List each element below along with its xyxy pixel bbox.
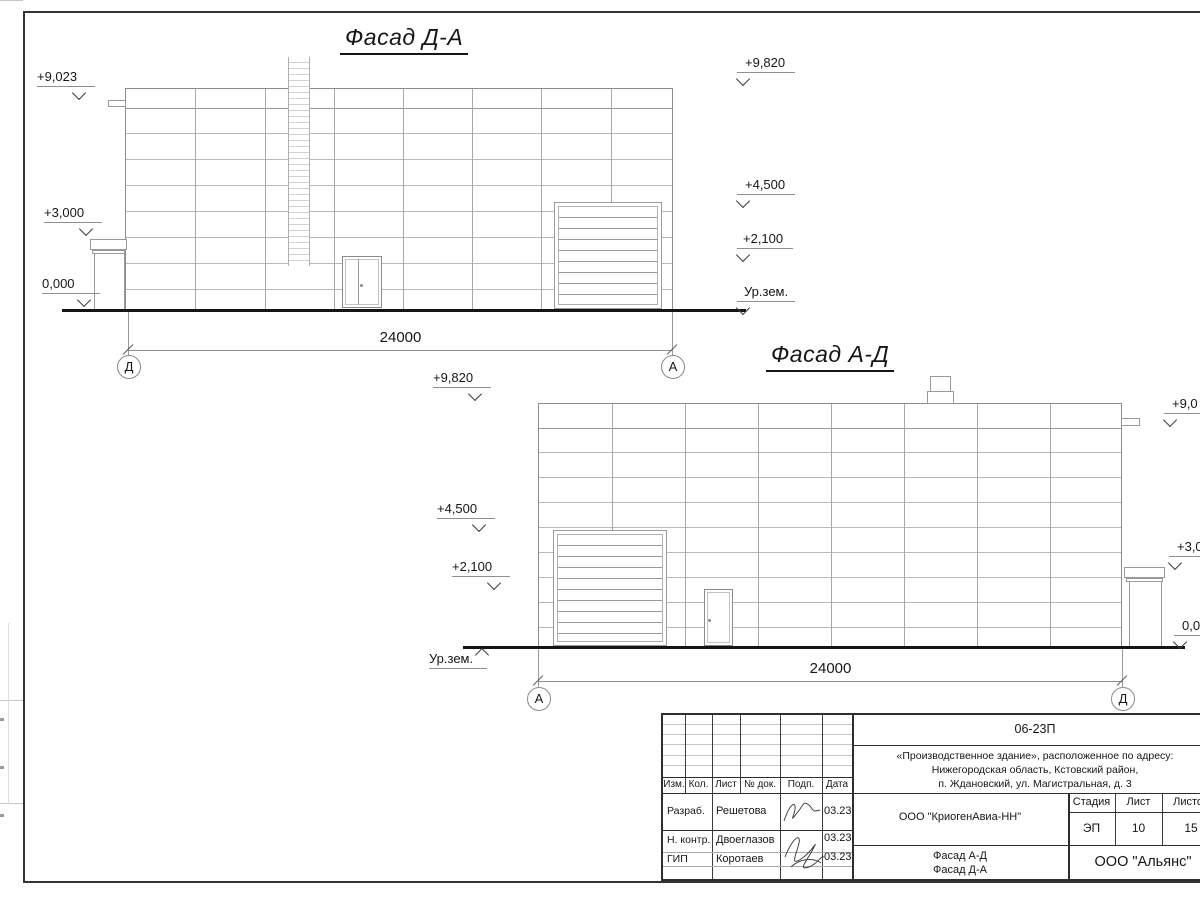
elevation-mark: +3,000 xyxy=(44,206,102,223)
address-line: Нижегородская область, Кстовский район, xyxy=(857,763,1200,777)
parapet-line xyxy=(539,404,1121,429)
elevation-mark: +9,820 xyxy=(433,371,491,388)
header-row-line xyxy=(663,777,852,778)
adjacent-sheet-fragment xyxy=(0,0,23,1)
elevation-mark: +4,500 xyxy=(437,502,495,519)
column-line xyxy=(265,89,266,309)
sectional-gate xyxy=(554,202,662,309)
adjacent-sheet-fragment xyxy=(0,803,23,804)
door-handle xyxy=(360,284,363,287)
col-header-podp: Подп. xyxy=(780,779,822,790)
col-header-list: Лист xyxy=(712,779,740,790)
elevation-mark: +2,100 xyxy=(452,560,510,577)
elevation-mark: +4,500 xyxy=(737,178,795,195)
roof-vent-base xyxy=(927,391,954,404)
staff-name: Коротаев xyxy=(716,853,764,865)
revision-row-line xyxy=(663,765,852,766)
door-leaf-split xyxy=(358,259,359,305)
roof-vent-upper xyxy=(930,376,951,392)
column-line xyxy=(403,89,404,309)
sheets-header: Листов xyxy=(1162,796,1200,808)
axis-bubble-left: Д xyxy=(117,355,141,379)
staff-role: ГИП xyxy=(667,853,688,865)
staff-role: Разраб. xyxy=(667,805,705,817)
facade-ad-title: Фасад А-Д xyxy=(766,341,894,372)
door-frame xyxy=(707,592,730,643)
title-block: Изм. Кол. Лист № док. Подп. Дата Разраб.… xyxy=(661,713,1200,881)
staff-date: 03.23 xyxy=(824,805,852,817)
staff-name: Двоеглазов xyxy=(716,834,774,846)
elevation-mark: +9,0 xyxy=(1164,397,1200,414)
column-line xyxy=(904,404,905,647)
axis-bubble-right: А xyxy=(661,355,685,379)
project-code: 06-23П xyxy=(852,722,1200,736)
column-line xyxy=(1050,404,1051,647)
sheet-title: Фасад А-Д Фасад Д-А xyxy=(852,849,1068,877)
stage-header-line xyxy=(1068,812,1200,813)
signature-reshetova xyxy=(781,797,823,827)
project-address: «Производственное здание», расположенное… xyxy=(857,749,1200,791)
axis-bubble-right: Д xyxy=(1111,687,1135,711)
gate-slats xyxy=(557,534,663,642)
ground-level-mark: Ур.зем. xyxy=(737,285,795,302)
axis-bubble-left: А xyxy=(527,687,551,711)
gate-slats xyxy=(558,206,658,305)
dimension-label: 24000 xyxy=(758,660,903,677)
col-header-data: Дата xyxy=(822,779,852,790)
revision-row-line xyxy=(663,744,852,745)
revision-row-line xyxy=(663,724,852,725)
elevation-mark: +9,820 xyxy=(737,56,795,73)
entrance-door xyxy=(704,589,733,646)
door-frame xyxy=(345,259,379,305)
annex-canopy xyxy=(1124,567,1165,578)
staff-role: Н. контр. xyxy=(667,834,710,846)
annex-body xyxy=(1129,582,1162,648)
sectional-gate xyxy=(553,530,667,646)
ground-line xyxy=(463,646,1185,649)
address-line: п. Ждановский, ул. Магистральная, д. 3 xyxy=(857,777,1200,791)
column-line xyxy=(472,89,473,309)
facade-da-title: Фасад Д-А xyxy=(340,24,468,55)
revision-row-line xyxy=(663,755,852,756)
ground-line xyxy=(62,309,746,312)
dimension-line xyxy=(128,350,673,351)
stage-value: ЭП xyxy=(1068,821,1115,835)
staff-name: Решетова xyxy=(716,805,766,817)
staff-date: 03.23 xyxy=(824,851,852,863)
elevation-mark: +9,023 xyxy=(37,70,95,87)
header-bottom-line xyxy=(663,793,1200,794)
dimension-line xyxy=(538,681,1123,682)
staff-date: 03.23 xyxy=(824,832,852,844)
entrance-door xyxy=(342,256,382,308)
adjacent-sheet-fragment xyxy=(0,814,4,817)
wall-bracket xyxy=(108,100,126,107)
stage-header: Стадия xyxy=(1068,796,1115,808)
column-line xyxy=(685,404,686,647)
column-line xyxy=(541,89,542,309)
elevation-mark: 0,000 xyxy=(42,277,100,294)
sheet-number: 10 xyxy=(1115,821,1162,835)
annex-canopy xyxy=(90,239,127,250)
address-line: «Производственное здание», расположенное… xyxy=(857,749,1200,763)
adjacent-sheet-fragment xyxy=(0,700,23,701)
signature-korotaev xyxy=(779,827,827,877)
col-header-izm: Изм. xyxy=(663,779,685,790)
sheet-header: Лист xyxy=(1115,796,1162,808)
drawing-sheet: Фасад Д-А 24000 Д А +9,023 +3,000 0,000 xyxy=(0,0,1200,900)
col-header-kol: Кол. xyxy=(685,779,712,790)
elevation-mark: 0,0 xyxy=(1174,619,1200,636)
column-line xyxy=(831,404,832,647)
sheets-total: 15 xyxy=(1162,821,1200,835)
door-handle xyxy=(708,619,711,622)
organization-name: ООО "КриогенАвиа-НН" xyxy=(852,811,1068,823)
column-line xyxy=(977,404,978,647)
column-line xyxy=(334,89,335,309)
bottom-cells-line xyxy=(852,845,1200,846)
roof-access-ladder xyxy=(288,57,310,266)
dimension-label: 24000 xyxy=(328,329,473,346)
elevation-mark: +2,100 xyxy=(737,232,793,249)
col-header-ndok: № док. xyxy=(740,779,780,790)
company-name: ООО "Альянс" xyxy=(1068,854,1200,870)
sheet-title-line: Фасад Д-А xyxy=(852,863,1068,877)
wall-bracket xyxy=(1121,418,1140,426)
adjacent-sheet-fragment xyxy=(8,623,9,804)
column-line xyxy=(195,89,196,309)
elevation-mark: +3,0 xyxy=(1169,540,1200,557)
column-line xyxy=(758,404,759,647)
adjacent-sheet-fragment xyxy=(0,718,4,721)
revision-row-line xyxy=(663,734,852,735)
code-bottom-line xyxy=(852,745,1200,746)
adjacent-sheet-fragment xyxy=(0,766,4,769)
parapet-line xyxy=(126,89,672,109)
sheet-title-line: Фасад А-Д xyxy=(852,849,1068,863)
